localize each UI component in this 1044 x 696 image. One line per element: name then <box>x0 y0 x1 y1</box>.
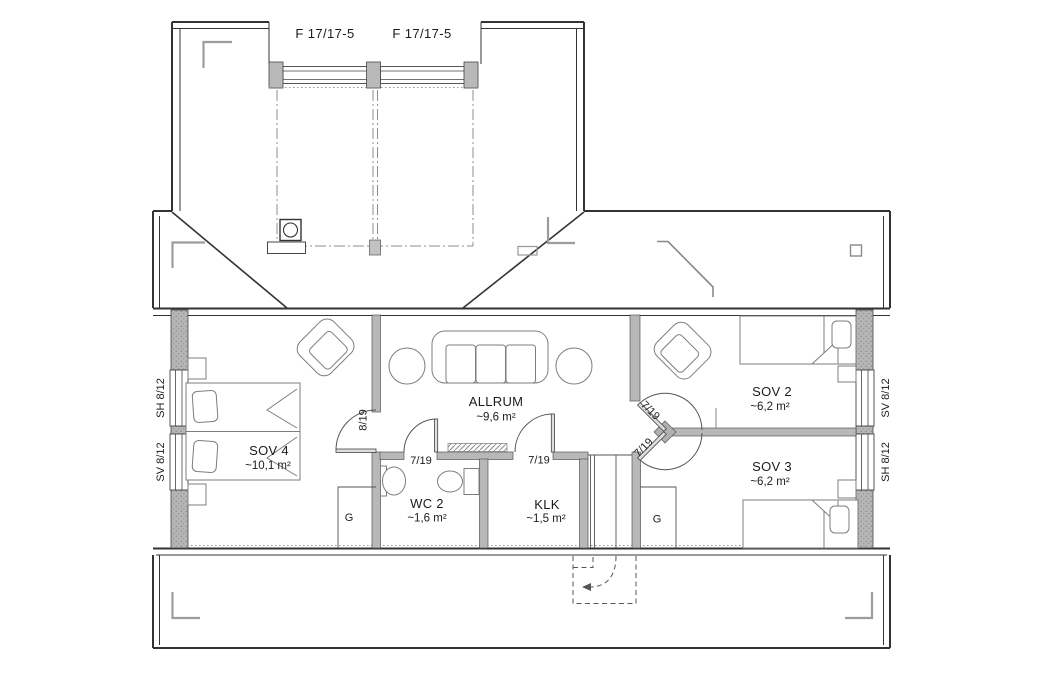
window-label-left-bottom: SV 8/12 <box>155 442 167 481</box>
corner-mark <box>204 42 233 68</box>
door-sov4 <box>336 410 376 453</box>
pillow <box>192 440 218 473</box>
side-table <box>556 348 592 384</box>
sov2-furniture <box>650 316 856 383</box>
area-label-sov4: ~10,1 m² <box>245 460 291 472</box>
wc2-fixtures <box>381 466 480 496</box>
nightstand <box>188 484 206 505</box>
door-klk <box>515 414 555 452</box>
chimney <box>268 220 306 254</box>
roof-vent-mark <box>851 245 862 256</box>
pillow <box>832 321 851 348</box>
nightstand <box>188 358 206 379</box>
pillow <box>830 506 849 533</box>
window-post <box>464 62 478 88</box>
room-label-wc2: WC 2 <box>410 496 444 511</box>
stair-direction-arrow <box>582 583 591 591</box>
floor-plan-drawing: F 17/17-5 F 17/17-5 ALLRUM ~9,6 m² SOV 4… <box>0 0 1044 696</box>
window-label-f2: F 17/17-5 <box>392 26 451 41</box>
room-label-sov2: SOV 2 <box>752 384 792 399</box>
area-label-wc2: ~1,6 m² <box>407 513 446 525</box>
railing-post <box>370 240 381 255</box>
washbasin <box>383 467 406 495</box>
window-right-sh <box>856 434 874 490</box>
window-label-left-top: SH 8/12 <box>155 378 167 418</box>
window-label-f1: F 17/17-5 <box>295 26 354 41</box>
window-right-sv <box>856 370 874 426</box>
window-label-right-bottom: SH 8/12 <box>880 442 892 482</box>
hall-cabinet <box>448 444 507 452</box>
corner-mark <box>173 592 201 618</box>
floor-plan-page: F 17/17-5 F 17/17-5 ALLRUM ~9,6 m² SOV 4… <box>0 0 1044 696</box>
window-post <box>367 62 381 88</box>
nightstand <box>838 480 856 498</box>
labels: F 17/17-5 F 17/17-5 ALLRUM ~9,6 m² SOV 4… <box>155 26 892 526</box>
area-label-sov3: ~6,2 m² <box>750 476 789 488</box>
window-left-sv <box>170 434 188 490</box>
toilet-bowl <box>438 471 463 492</box>
wardrobe-label-right: G <box>653 514 662 526</box>
room-label-sov3: SOV 3 <box>752 459 792 474</box>
area-label-allrum: ~9,6 m² <box>476 412 515 424</box>
door-label-wc2: 7/19 <box>410 455 431 467</box>
door-label-sov3: 7/19 <box>632 436 656 460</box>
area-label-klk: ~1,5 m² <box>526 513 565 525</box>
roof-slope-mark <box>657 242 713 298</box>
gable-windows <box>269 62 478 88</box>
door-label-klk: 7/19 <box>528 455 549 467</box>
pillow <box>192 390 218 423</box>
wardrobe-left-outline <box>338 487 376 548</box>
room-label-sov4: SOV 4 <box>249 443 289 458</box>
allrum-furniture <box>389 331 592 384</box>
room-label-klk: KLK <box>534 497 560 512</box>
armchair <box>293 315 358 380</box>
side-table <box>389 348 425 384</box>
toilet-tank <box>464 469 479 495</box>
corner-mark <box>845 592 872 618</box>
dormer <box>172 22 584 255</box>
room-label-allrum: ALLRUM <box>469 394 524 409</box>
window-left-sh <box>170 370 188 426</box>
wardrobe-label-left: G <box>345 512 354 524</box>
corner-mark <box>173 243 206 269</box>
ceiling-height-lines <box>277 90 473 255</box>
door-wc2 <box>404 419 438 452</box>
door-label-sov4: 8/19 <box>358 409 370 430</box>
window-post <box>269 62 283 88</box>
door-label-sov2: 7/19 <box>638 399 662 423</box>
sov4-furniture <box>186 315 358 505</box>
window-label-right-top: SV 8/12 <box>880 378 892 417</box>
area-label-sov2: ~6,2 m² <box>750 401 789 413</box>
sov3-furniture <box>743 480 858 548</box>
nightstand <box>838 366 856 382</box>
armchair <box>650 318 715 383</box>
